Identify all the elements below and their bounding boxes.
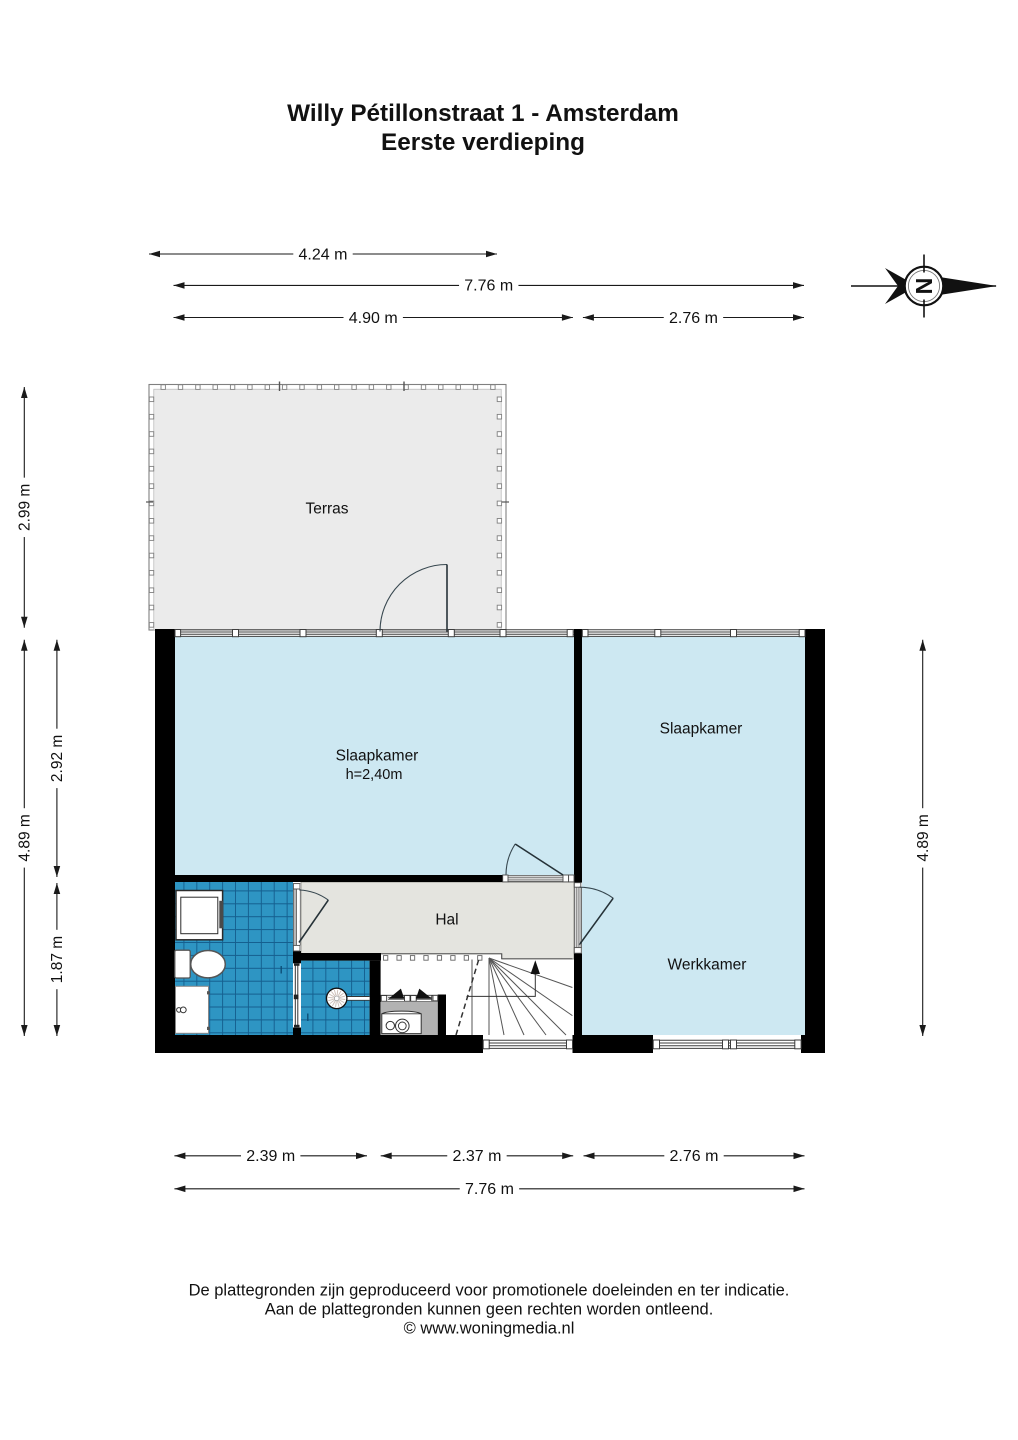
svg-text:N: N	[911, 278, 937, 295]
svg-text:2.92 m: 2.92 m	[49, 735, 66, 782]
svg-text:2.76 m: 2.76 m	[670, 1148, 719, 1165]
svg-text:2.76 m: 2.76 m	[669, 310, 718, 327]
svg-text:1.87 m: 1.87 m	[49, 936, 66, 983]
svg-text:4.89 m: 4.89 m	[915, 814, 932, 861]
svg-text:4.90 m: 4.90 m	[349, 310, 398, 327]
svg-text:Willy Pétillonstraat 1 - Amste: Willy Pétillonstraat 1 - Amsterdam	[287, 100, 679, 127]
svg-text:Hal: Hal	[435, 912, 458, 929]
svg-text:7.76 m: 7.76 m	[465, 1181, 514, 1198]
svg-text:4.89 m: 4.89 m	[17, 814, 34, 861]
svg-text:7.76 m: 7.76 m	[464, 278, 513, 295]
svg-text:Slaapkamer: Slaapkamer	[660, 721, 743, 738]
svg-text:Slaapkamer: Slaapkamer	[336, 748, 419, 765]
svg-text:Aan de plattegronden kunnen ge: Aan de plattegronden kunnen geen rechten…	[265, 1301, 714, 1319]
svg-text:2.37 m: 2.37 m	[452, 1148, 501, 1165]
svg-text:4.24 m: 4.24 m	[299, 246, 348, 263]
svg-text:h=2,40m: h=2,40m	[346, 767, 403, 783]
svg-text:Terras: Terras	[305, 501, 348, 518]
svg-text:2.39 m: 2.39 m	[246, 1148, 295, 1165]
svg-text:Werkkamer: Werkkamer	[668, 957, 747, 974]
svg-text:© www.woningmedia.nl: © www.woningmedia.nl	[404, 1320, 575, 1338]
svg-text:De plattegronden zijn geproduc: De plattegronden zijn geproduceerd voor …	[189, 1282, 790, 1300]
svg-text:2.99 m: 2.99 m	[17, 484, 34, 531]
svg-text:Eerste verdieping: Eerste verdieping	[381, 129, 585, 156]
